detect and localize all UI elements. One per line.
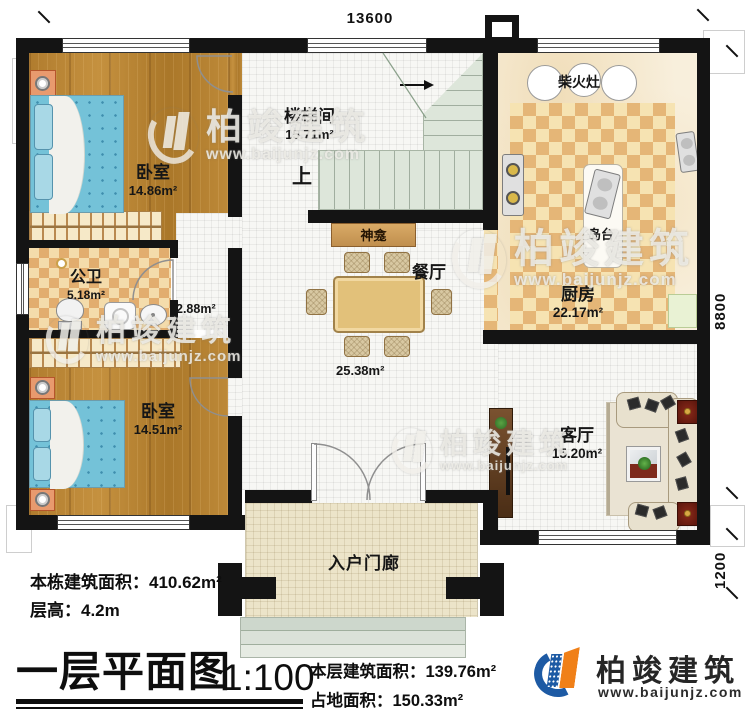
cooktop-icon [502, 154, 524, 216]
wall-bathroom-top [16, 240, 178, 248]
pillow [33, 408, 51, 442]
washer-drum [112, 308, 129, 325]
dining-floor [242, 230, 498, 490]
burner [506, 163, 520, 177]
title-rule-thick [16, 699, 303, 704]
porch-column-left-stub [242, 577, 276, 599]
bedroom2-label: 卧室 14.51m² [118, 401, 198, 439]
end-table [677, 400, 698, 424]
porch-label: 入户门廊 [328, 549, 400, 574]
wall-corridor-lower [228, 416, 242, 515]
wall-corridor-middle [228, 248, 242, 378]
window-living-bottom [538, 530, 677, 545]
window-stairwell-top [307, 38, 427, 53]
wall-corridor-upper [228, 95, 242, 217]
porch-column-right [480, 563, 504, 616]
pillow [33, 447, 51, 481]
brand-logo: 柏竣建筑 www.baijunjz.com [534, 644, 746, 708]
entry-steps [240, 617, 466, 658]
wood-stove-label: 柴火灶 [558, 72, 600, 92]
living-label: 客厅 15.20m² [537, 425, 617, 463]
sink-icon [140, 304, 167, 326]
wardrobe-bedroom1 [29, 211, 162, 243]
window-bathroom-left [16, 263, 29, 315]
plant-icon [495, 417, 507, 429]
drawing-scale: 1:100 [222, 659, 315, 696]
dining-chair [344, 252, 370, 273]
kitchen-doorway-floor [484, 230, 498, 330]
dining-chair [384, 252, 410, 273]
exterior-platform [710, 505, 745, 547]
dining-area-label: 25.38m² [336, 363, 384, 378]
basin [596, 177, 614, 193]
wall-kitchen-left [483, 38, 498, 230]
island-label: 岛台 [588, 224, 614, 243]
entry-door-leaf [420, 443, 426, 501]
dining-chair [306, 289, 327, 315]
kitchen-mat [668, 294, 697, 328]
wall-stairs-bottom [308, 210, 483, 223]
wall-kitchen-living-divider [483, 330, 710, 344]
wardrobe-bedroom2 [29, 338, 181, 368]
title-rule-thin [16, 707, 303, 709]
wall-bathroom-bottom [16, 330, 178, 338]
brand-logo-icon [534, 644, 590, 704]
brand-url: www.baijunjz.com [598, 684, 743, 700]
dimension-porch-right: 1200 [712, 543, 729, 589]
wall-living-bottom-right [677, 530, 710, 545]
window-kitchen-top [537, 38, 660, 53]
bathroom-label: 公卫 5.18m² [52, 268, 120, 303]
footprint-area-note: 占地面积：150.33m² [310, 687, 463, 711]
coffee-table [626, 446, 661, 482]
entry-door-leaf [311, 443, 317, 501]
stairs-up-label: 上 [292, 160, 312, 189]
floor-area-note: 本层建筑面积：139.76m² [310, 658, 496, 682]
dining-chair [431, 289, 452, 315]
basin [680, 137, 693, 150]
wall-right [697, 38, 710, 545]
floor-height-note: 层高：4.2m [30, 596, 120, 621]
bedroom1-label: 卧室 14.86m² [108, 162, 198, 200]
dining-chair [384, 336, 410, 357]
stairs-arrow-head [424, 80, 434, 90]
wall-living-jog [483, 490, 498, 545]
sheet-title: 一层平面图 [16, 651, 231, 693]
bedroom2-door-gap-floor [228, 378, 242, 416]
wood-stove-burner-icon [601, 65, 637, 101]
nightstand [30, 70, 56, 97]
washing-machine-icon [104, 302, 136, 330]
bed-bedroom2 [29, 400, 125, 488]
shrine-label: 神龛 [332, 224, 415, 248]
drain-dot [151, 313, 155, 317]
dimension-right: 8800 [712, 276, 729, 330]
toilet-tank [58, 321, 82, 330]
floor-plan-page: 神龛 [0, 0, 750, 716]
dimension-top: 13600 [320, 10, 420, 27]
nightstand [30, 489, 55, 511]
bedroom1-door-gap-floor [228, 53, 242, 95]
dimension-tick [726, 587, 739, 600]
kitchen-label: 厨房 22.17m² [538, 284, 618, 322]
dimension-tick [697, 9, 710, 22]
lamp-icon [35, 492, 50, 507]
end-table [677, 502, 698, 526]
window-bedroom1-top [62, 38, 190, 53]
shrine-cabinet: 神龛 [331, 223, 416, 247]
bed-sheet [50, 401, 84, 489]
dining-label: 餐厅 [412, 258, 446, 283]
window-bedroom2-bottom [57, 515, 190, 530]
wall-bathroom-right-upper [170, 244, 178, 258]
basin [682, 154, 695, 167]
burner [506, 191, 520, 205]
lamp-icon [35, 76, 50, 91]
stairs-direction-arrow [400, 84, 426, 86]
wall-porch-left [245, 490, 312, 503]
dimension-tick [38, 11, 51, 24]
bed-sheet [49, 96, 85, 214]
decor-dot [684, 510, 691, 517]
dining-chair [344, 336, 370, 357]
dimension-tick [726, 487, 739, 500]
lamp-icon [35, 380, 50, 395]
pillow [34, 104, 53, 150]
building-area-note: 本栋建筑面积：410.62m² [30, 568, 222, 593]
decor-dot [684, 408, 691, 415]
chimney-column [485, 15, 519, 44]
hallway-area-label: 2.88m² [176, 302, 216, 316]
nightstand [30, 377, 55, 399]
stairwell-label: 楼梯间 15.71m² [262, 106, 357, 144]
tv-icon [506, 447, 510, 495]
pillow [34, 154, 53, 200]
dining-table [333, 276, 425, 333]
entry-door-gap-floor [312, 490, 425, 503]
basin [591, 195, 609, 211]
porch-column-right-stub [446, 577, 480, 599]
stairs-lower-flight [318, 150, 483, 210]
plant-icon [638, 457, 651, 470]
